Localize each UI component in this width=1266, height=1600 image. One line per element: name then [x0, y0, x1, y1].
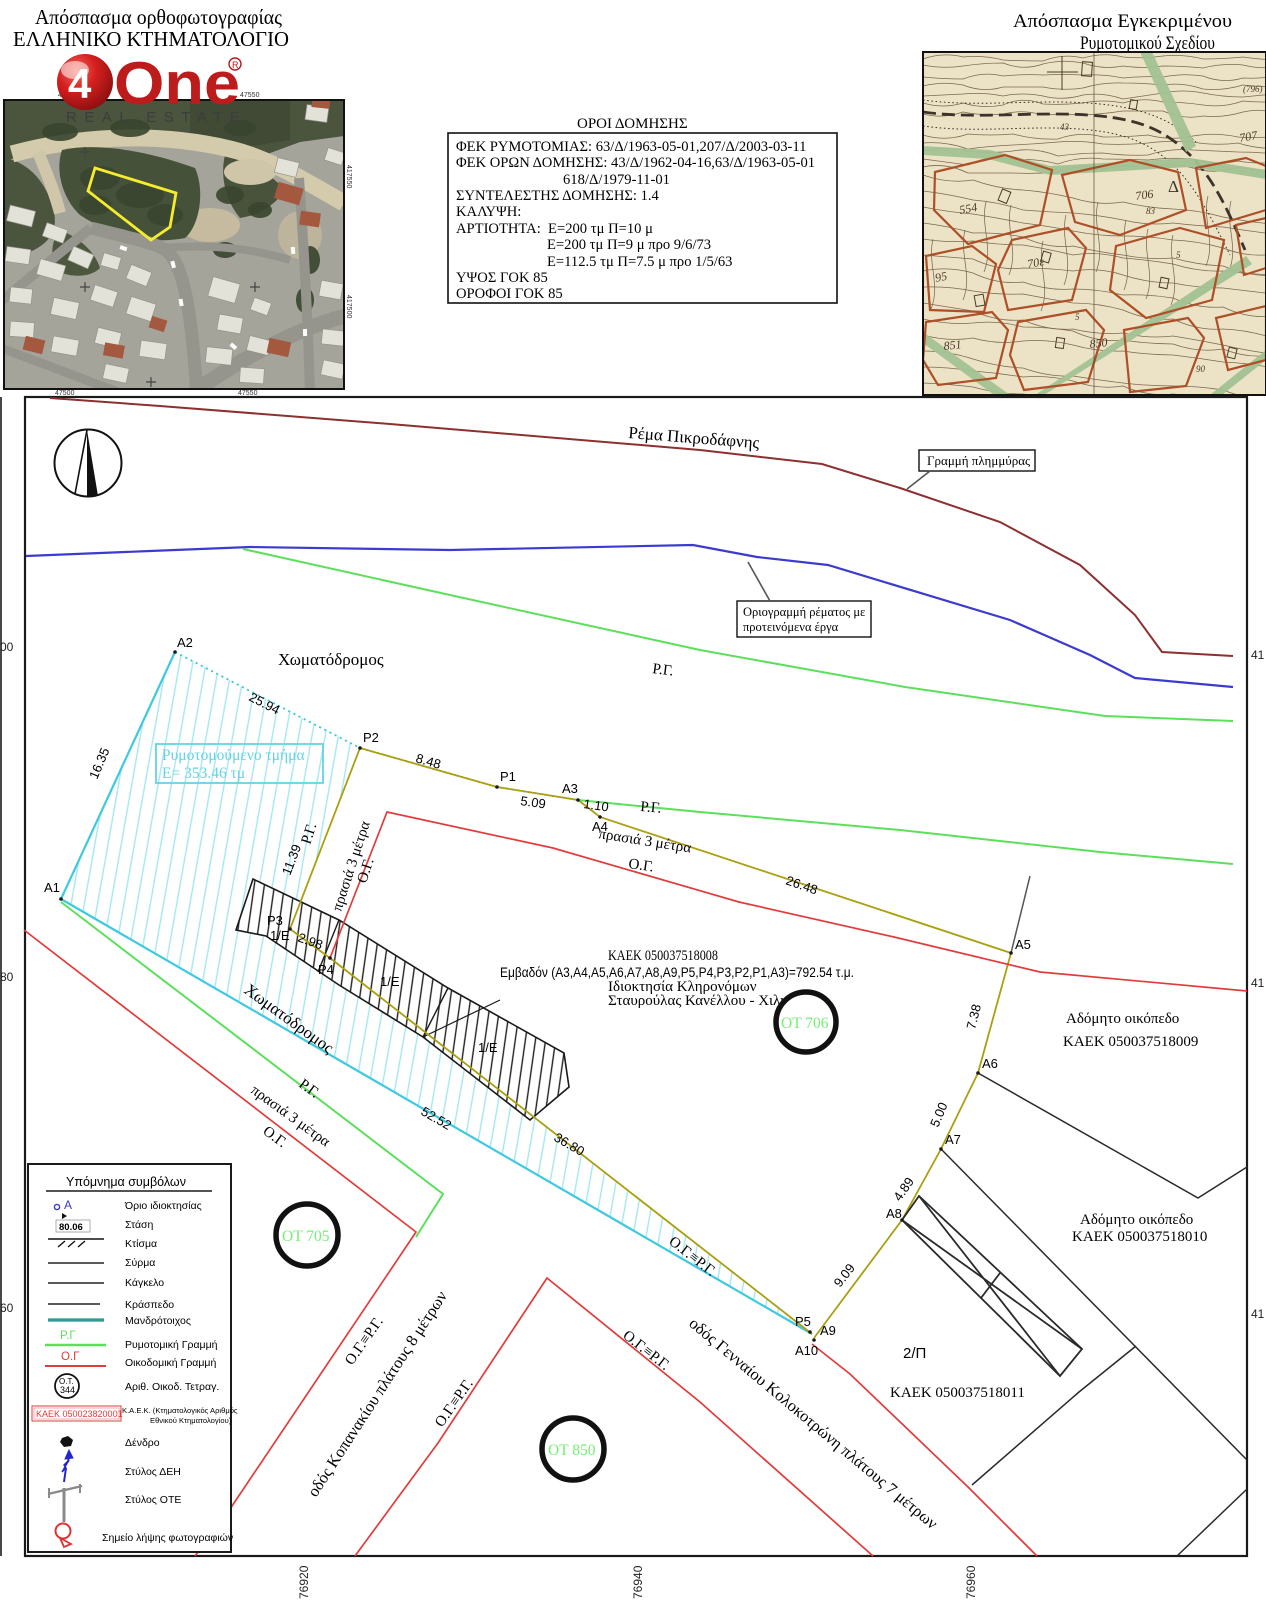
svg-text:P5: P5: [795, 1314, 811, 1329]
svg-text:43: 43: [1060, 122, 1070, 132]
svg-text:Ρ.Γ.: Ρ.Γ.: [652, 661, 675, 679]
svg-text:ΦΕΚ ΟΡΩΝ ΔΟΜΗΣΗΣ: 43/Δ/1962-04: ΦΕΚ ΟΡΩΝ ΔΟΜΗΣΗΣ: 43/Δ/1962-04-16,63/Δ/1…: [456, 155, 815, 171]
svg-text:344: 344: [60, 1385, 75, 1395]
svg-text:Αριθ. Οικοδ. Τετραγ.: Αριθ. Οικοδ. Τετραγ.: [125, 1381, 219, 1393]
svg-text:Χωματόδρομος: Χωματόδρομος: [278, 650, 384, 669]
svg-text:Ε=112.5 τμ Π=7.5 μ προ 1/5/63: Ε=112.5 τμ Π=7.5 μ προ 1/5/63: [547, 254, 732, 270]
svg-text:76940: 76940: [631, 1565, 645, 1599]
svg-text:Ρυμοτομούμενο τμήμα: Ρυμοτομούμενο τμήμα: [162, 747, 305, 764]
svg-text:A9: A9: [820, 1323, 836, 1338]
svg-text:ΣΥΝΤΕΛΕΣΤΗΣ ΔΟΜΗΣΗΣ: 1.4: ΣΥΝΤΕΛΕΣΤΗΣ ΔΟΜΗΣΗΣ: 1.4: [456, 188, 660, 204]
svg-text:5: 5: [1075, 312, 1080, 322]
svg-text:ΟΤ 705: ΟΤ 705: [282, 1228, 330, 1245]
svg-text:Κράσπεδο: Κράσπεδο: [125, 1299, 174, 1311]
svg-text:851: 851: [943, 337, 962, 353]
svg-text:1/Ε: 1/Ε: [270, 928, 290, 943]
svg-text:Απόσπασμα ορθοφωτογραφίας: Απόσπασμα ορθοφωτογραφίας: [35, 5, 283, 29]
svg-text:618/Δ/1979-11-01: 618/Δ/1979-11-01: [563, 172, 670, 188]
svg-text:Ε=200 τμ Π=9 μ προ 9/6/73: Ε=200 τμ Π=9 μ προ 9/6/73: [547, 237, 711, 253]
svg-text:REAL ESTATE: REAL ESTATE: [66, 109, 247, 126]
svg-text:83: 83: [1146, 206, 1156, 216]
svg-text:ΚΑΕΚ 050037518008: ΚΑΕΚ 050037518008: [608, 948, 718, 964]
svg-text:417500: 417500: [345, 295, 352, 318]
svg-text:Δένδρο: Δένδρο: [125, 1437, 160, 1449]
svg-text:ΚΑΕΚ 050037518010: ΚΑΕΚ 050037518010: [1072, 1229, 1207, 1245]
svg-text:P4: P4: [318, 962, 334, 977]
svg-text:A2: A2: [177, 635, 193, 650]
svg-text:P3: P3: [267, 913, 283, 928]
svg-text:Κτίσμα: Κτίσμα: [125, 1238, 157, 1250]
svg-text:Κάγκελο: Κάγκελο: [125, 1277, 164, 1289]
svg-text:Αδόμητο οικόπεδο: Αδόμητο οικόπεδο: [1080, 1212, 1193, 1228]
svg-text:80.06: 80.06: [59, 1222, 83, 1233]
svg-text:Απόσπασμα Εγκεκριμένου: Απόσπασμα Εγκεκριμένου: [1013, 11, 1232, 32]
svg-text:Όριο ιδιοκτησίας: Όριο ιδιοκτησίας: [124, 1200, 202, 1212]
svg-text:(796): (796): [1243, 84, 1263, 94]
svg-text:ΚΑΕΚ 050037518011: ΚΑΕΚ 050037518011: [890, 1385, 1025, 1401]
svg-text:ΦΕΚ ΡΥΜΟΤΟΜΙΑΣ: 63/Δ/1963-05-0: ΦΕΚ ΡΥΜΟΤΟΜΙΑΣ: 63/Δ/1963-05-01,207/Δ/20…: [456, 139, 806, 155]
svg-text:4: 4: [68, 60, 92, 107]
svg-text:2/Π: 2/Π: [903, 1345, 926, 1362]
svg-text:Σημείο λήψης φωτογραφιών: Σημείο λήψης φωτογραφιών: [102, 1532, 233, 1544]
svg-text:Ρυμοτομικού Σχεδίου: Ρυμοτομικού Σχεδίου: [1080, 33, 1215, 54]
svg-text:00: 00: [0, 640, 14, 654]
svg-text:Εμβαδόν (Α3,Α4,Α5,Α6,Α7,Α8,Α9,: Εμβαδόν (Α3,Α4,Α5,Α6,Α7,Α8,Α9,Ρ5,Ρ4,Ρ3,Ρ…: [500, 965, 854, 980]
svg-text:Στύλος ΔΕΗ: Στύλος ΔΕΗ: [125, 1466, 181, 1478]
svg-text:Ρ.Γ: Ρ.Γ: [60, 1330, 76, 1342]
svg-text:Υπόμνημα συμβόλων: Υπόμνημα συμβόλων: [66, 1175, 186, 1189]
svg-text:P1: P1: [500, 769, 516, 784]
svg-text:Ρυμοτομική Γραμμή: Ρυμοτομική Γραμμή: [125, 1339, 218, 1351]
svg-text:Εθνικού Κτηματολογίου): Εθνικού Κτηματολογίου): [150, 1416, 232, 1425]
svg-text:P2: P2: [363, 730, 379, 745]
svg-text:A4: A4: [592, 819, 608, 834]
svg-text:Μανδρότοιχος: Μανδρότοιχος: [125, 1315, 191, 1327]
svg-text:ΟΤ 706: ΟΤ 706: [781, 1015, 829, 1032]
svg-text:706: 706: [1134, 187, 1154, 203]
svg-text:A8: A8: [886, 1206, 902, 1221]
svg-text:ΚΑΕΚ 050037518009: ΚΑΕΚ 050037518009: [1063, 1034, 1198, 1050]
svg-text:Οικοδομική Γραμμή: Οικοδομική Γραμμή: [125, 1357, 216, 1369]
svg-text:Σύρμα: Σύρμα: [125, 1257, 155, 1269]
svg-text:ΟΡΟΙ ΔΟΜΗΣΗΣ: ΟΡΟΙ ΔΟΜΗΣΗΣ: [577, 116, 688, 132]
svg-text:41: 41: [1251, 976, 1265, 990]
svg-text:5: 5: [1176, 250, 1181, 260]
svg-text:A7: A7: [945, 1132, 961, 1147]
svg-text:90: 90: [1196, 364, 1206, 374]
svg-text:850: 850: [1089, 335, 1108, 351]
svg-text:A3: A3: [562, 781, 578, 796]
svg-text:1/Ε: 1/Ε: [380, 974, 400, 989]
svg-text:47550: 47550: [240, 92, 260, 99]
svg-text:41: 41: [1251, 648, 1265, 662]
svg-text:A10: A10: [795, 1343, 818, 1358]
svg-text:One: One: [114, 50, 240, 117]
svg-text:60: 60: [0, 1301, 14, 1315]
svg-text:ΚΑΕΚ 050023820001: ΚΑΕΚ 050023820001: [36, 1409, 123, 1419]
svg-text:76960: 76960: [964, 1565, 978, 1599]
svg-text:ΚΑΛΥΨΗ:: ΚΑΛΥΨΗ:: [456, 204, 521, 220]
svg-text:Οριογραμμή ρέματος με: Οριογραμμή ρέματος με: [743, 605, 865, 619]
svg-text:ΥΨΟΣ ΓΟΚ 85: ΥΨΟΣ ΓΟΚ 85: [456, 270, 548, 286]
svg-text:ΑΡΤΙΟΤΗΤΑ: Ε=200 τμ Π=10 μ: ΑΡΤΙΟΤΗΤΑ: Ε=200 τμ Π=10 μ: [456, 221, 653, 237]
svg-text:Κ.Α.Ε.Κ. (Κτηματολογικός Αριθμ: Κ.Α.Ε.Κ. (Κτηματολογικός Αριθμός: [122, 1406, 238, 1415]
svg-text:A6: A6: [982, 1056, 998, 1071]
svg-text:A5: A5: [1015, 937, 1031, 952]
svg-text:80: 80: [0, 970, 14, 984]
svg-text:A: A: [64, 1198, 72, 1212]
svg-text:Ε= 353.46 τμ: Ε= 353.46 τμ: [162, 765, 245, 782]
svg-text:Στύλος ΟΤΕ: Στύλος ΟΤΕ: [125, 1494, 181, 1506]
svg-text:ΟΤ 850: ΟΤ 850: [548, 1442, 596, 1459]
svg-text:προτεινόμενα έργα: προτεινόμενα έργα: [743, 620, 839, 634]
svg-text:41: 41: [1251, 1307, 1265, 1321]
svg-text:Στάση: Στάση: [125, 1219, 154, 1231]
svg-text:Δ: Δ: [1168, 177, 1179, 196]
svg-text:Ρ.Γ.: Ρ.Γ.: [640, 799, 662, 817]
svg-text:417550: 417550: [345, 165, 352, 188]
svg-text:A1: A1: [44, 880, 60, 895]
svg-text:Ο.Γ: Ο.Γ: [61, 1351, 80, 1363]
svg-text:ΕΛΛΗΝΙΚΟ ΚΤΗΜΑΤΟΛΟΓΙΟ: ΕΛΛΗΝΙΚΟ ΚΤΗΜΑΤΟΛΟΓΙΟ: [13, 27, 289, 51]
svg-text:ΟΡΟΦΟΙ ΓΟΚ 85: ΟΡΟΦΟΙ ΓΟΚ 85: [456, 286, 563, 302]
svg-text:Αδόμητο οικόπεδο: Αδόμητο οικόπεδο: [1066, 1011, 1179, 1027]
svg-text:1/Ε: 1/Ε: [478, 1040, 498, 1055]
svg-text:Γραμμή πλημμύρας: Γραμμή πλημμύρας: [927, 453, 1031, 468]
svg-text:R: R: [232, 60, 239, 70]
svg-text:76920: 76920: [297, 1565, 311, 1599]
